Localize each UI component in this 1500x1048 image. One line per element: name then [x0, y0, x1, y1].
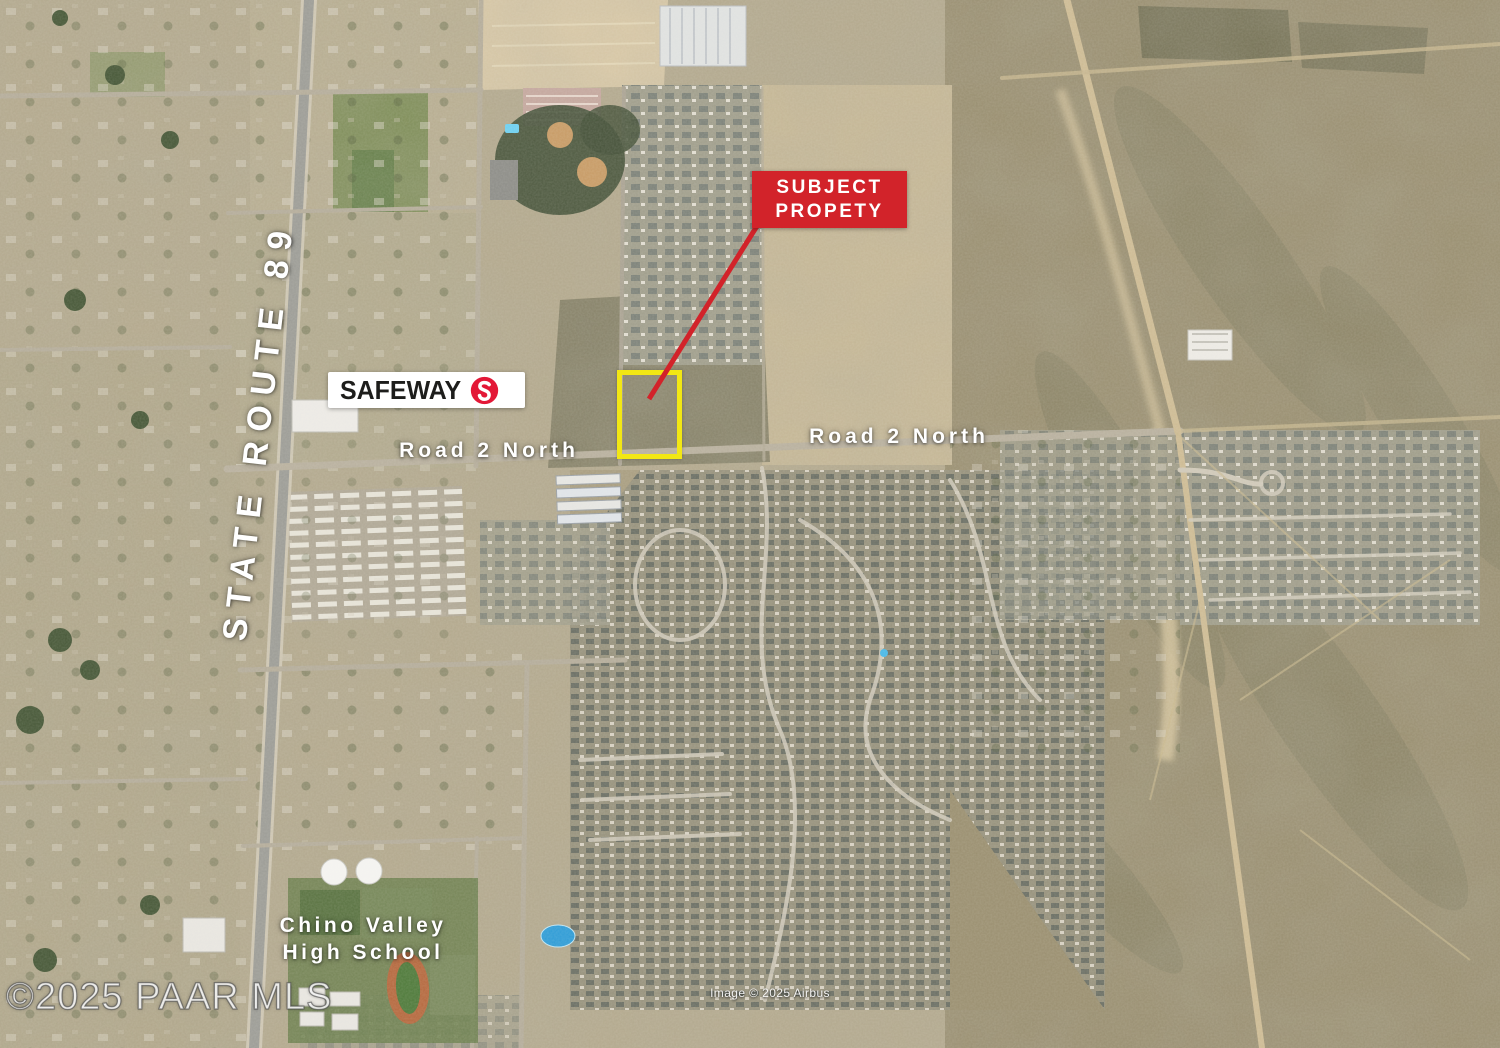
high-school-label-line-2: High School: [280, 939, 447, 966]
safeway-wordmark: SAFEWAY: [340, 377, 461, 403]
callout-line-1: SUBJECT: [776, 176, 882, 200]
mls-watermark: ©2025 PAAR MLS: [6, 976, 332, 1019]
road-2-north-label-east: Road 2 North: [809, 425, 989, 449]
subject-property-callout: SUBJECT PROPETY: [752, 171, 907, 228]
safeway-logo: SAFEWAY: [328, 372, 525, 408]
aerial-map: SUBJECT PROPETY SAFEWAY STATE ROUTE 89 R…: [0, 0, 1500, 1048]
subject-property-outline: [617, 370, 682, 459]
callout-line-2: PROPETY: [775, 200, 883, 224]
imagery-credit: Image © 2025 Airbus: [710, 986, 830, 1000]
high-school-label: Chino Valley High School: [280, 912, 447, 966]
safeway-s-icon: [470, 376, 499, 405]
high-school-label-line-1: Chino Valley: [280, 912, 447, 939]
road-2-north-label-west: Road 2 North: [399, 439, 579, 463]
satellite-imagery: [0, 0, 1500, 1048]
